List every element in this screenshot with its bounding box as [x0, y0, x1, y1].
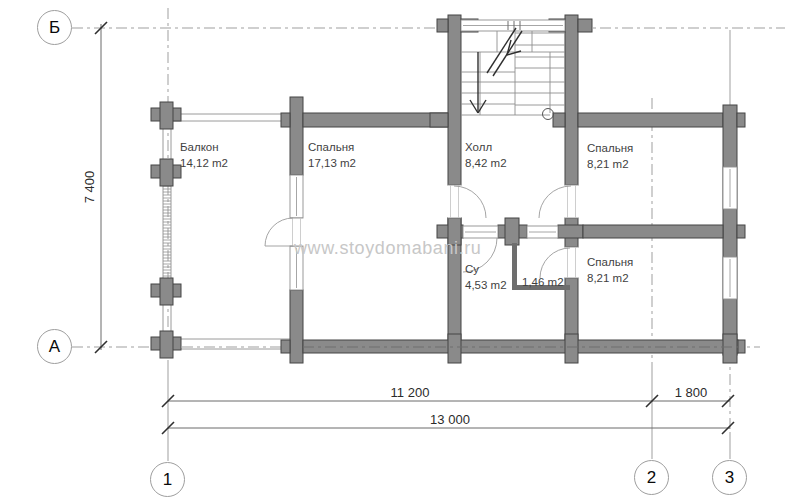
room-label-спальня-4: Спальня8,21 m2: [587, 255, 633, 286]
room-label-спальня-1: Спальня17,13 m2: [308, 140, 356, 171]
room-name: Су: [465, 262, 507, 278]
room-label-closet-6: 1,46 m2: [522, 275, 564, 291]
watermark-text: www.stoydomabani.ru: [294, 238, 481, 259]
room-area: 1,46 m2: [522, 275, 564, 291]
dimension-1800: 1 800: [675, 385, 708, 400]
room-label-холл-2: Холл8,42 m2: [465, 140, 507, 171]
room-label-спальня-3: Спальня8,21 m2: [587, 141, 633, 172]
room-area: 17,13 m2: [308, 156, 356, 172]
room-label-балкон-0: Балкон14,12 m2: [180, 140, 228, 171]
room-area: 4,53 m2: [465, 278, 507, 294]
dimension-vertical-7400: 7 400: [82, 171, 97, 204]
room-name: Спальня: [587, 141, 633, 157]
room-area: 8,21 m2: [587, 271, 633, 287]
dimension-11200: 11 200: [391, 385, 430, 400]
room-name: Балкон: [180, 140, 228, 156]
room-area: 8,21 m2: [587, 157, 633, 173]
axis-marker-1: 1: [150, 462, 185, 497]
dimension-13000: 13 000: [430, 412, 470, 427]
axis-marker-a: А: [37, 329, 72, 364]
staircase-layer: [461, 28, 565, 120]
axis-marker-b: Б: [37, 10, 72, 45]
room-area: 8,42 m2: [465, 156, 507, 172]
room-name: Спальня: [308, 140, 356, 156]
room-area: 14,12 m2: [180, 156, 228, 172]
axis-marker-2: 2: [634, 460, 669, 495]
room-name: Холл: [465, 140, 507, 156]
axis-marker-3: 3: [712, 460, 747, 495]
room-name: Спальня: [587, 255, 633, 271]
floor-plan-sheet: Б А 1 2 3 7 400 11 200 1 800 13 000 www.…: [0, 0, 800, 500]
room-label-су-5: Су4,53 m2: [465, 262, 507, 293]
